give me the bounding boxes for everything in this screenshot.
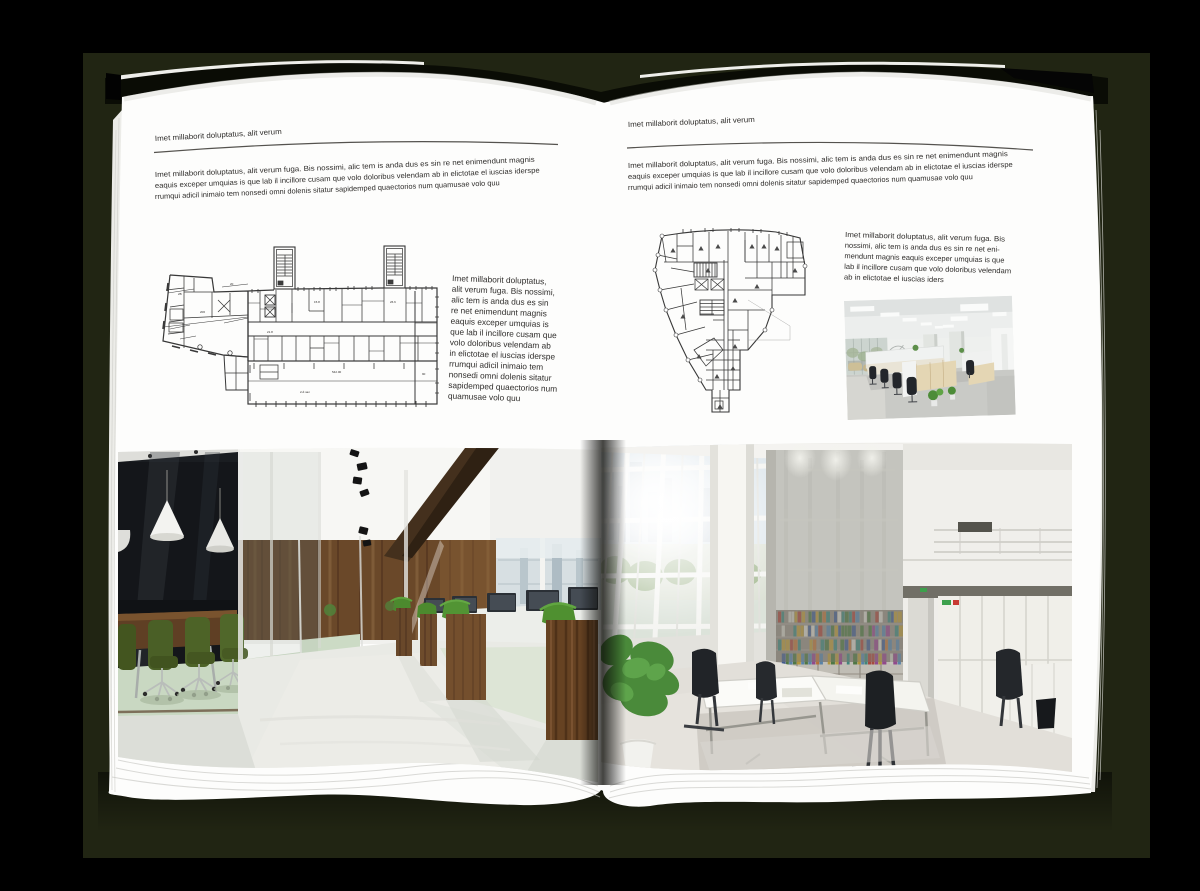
svg-text:26.6: 26.6 xyxy=(390,300,396,304)
svg-text:90: 90 xyxy=(422,372,426,376)
svg-text:542.00: 542.00 xyxy=(332,370,342,374)
svg-text:206: 206 xyxy=(200,310,205,314)
svg-text:2B: 2B xyxy=(178,292,182,296)
svg-text:21.8: 21.8 xyxy=(267,330,273,334)
svg-text:15.8: 15.8 xyxy=(314,300,320,304)
svg-text:2-й зал: 2-й зал xyxy=(300,390,310,394)
svg-text:20: 20 xyxy=(230,282,234,286)
